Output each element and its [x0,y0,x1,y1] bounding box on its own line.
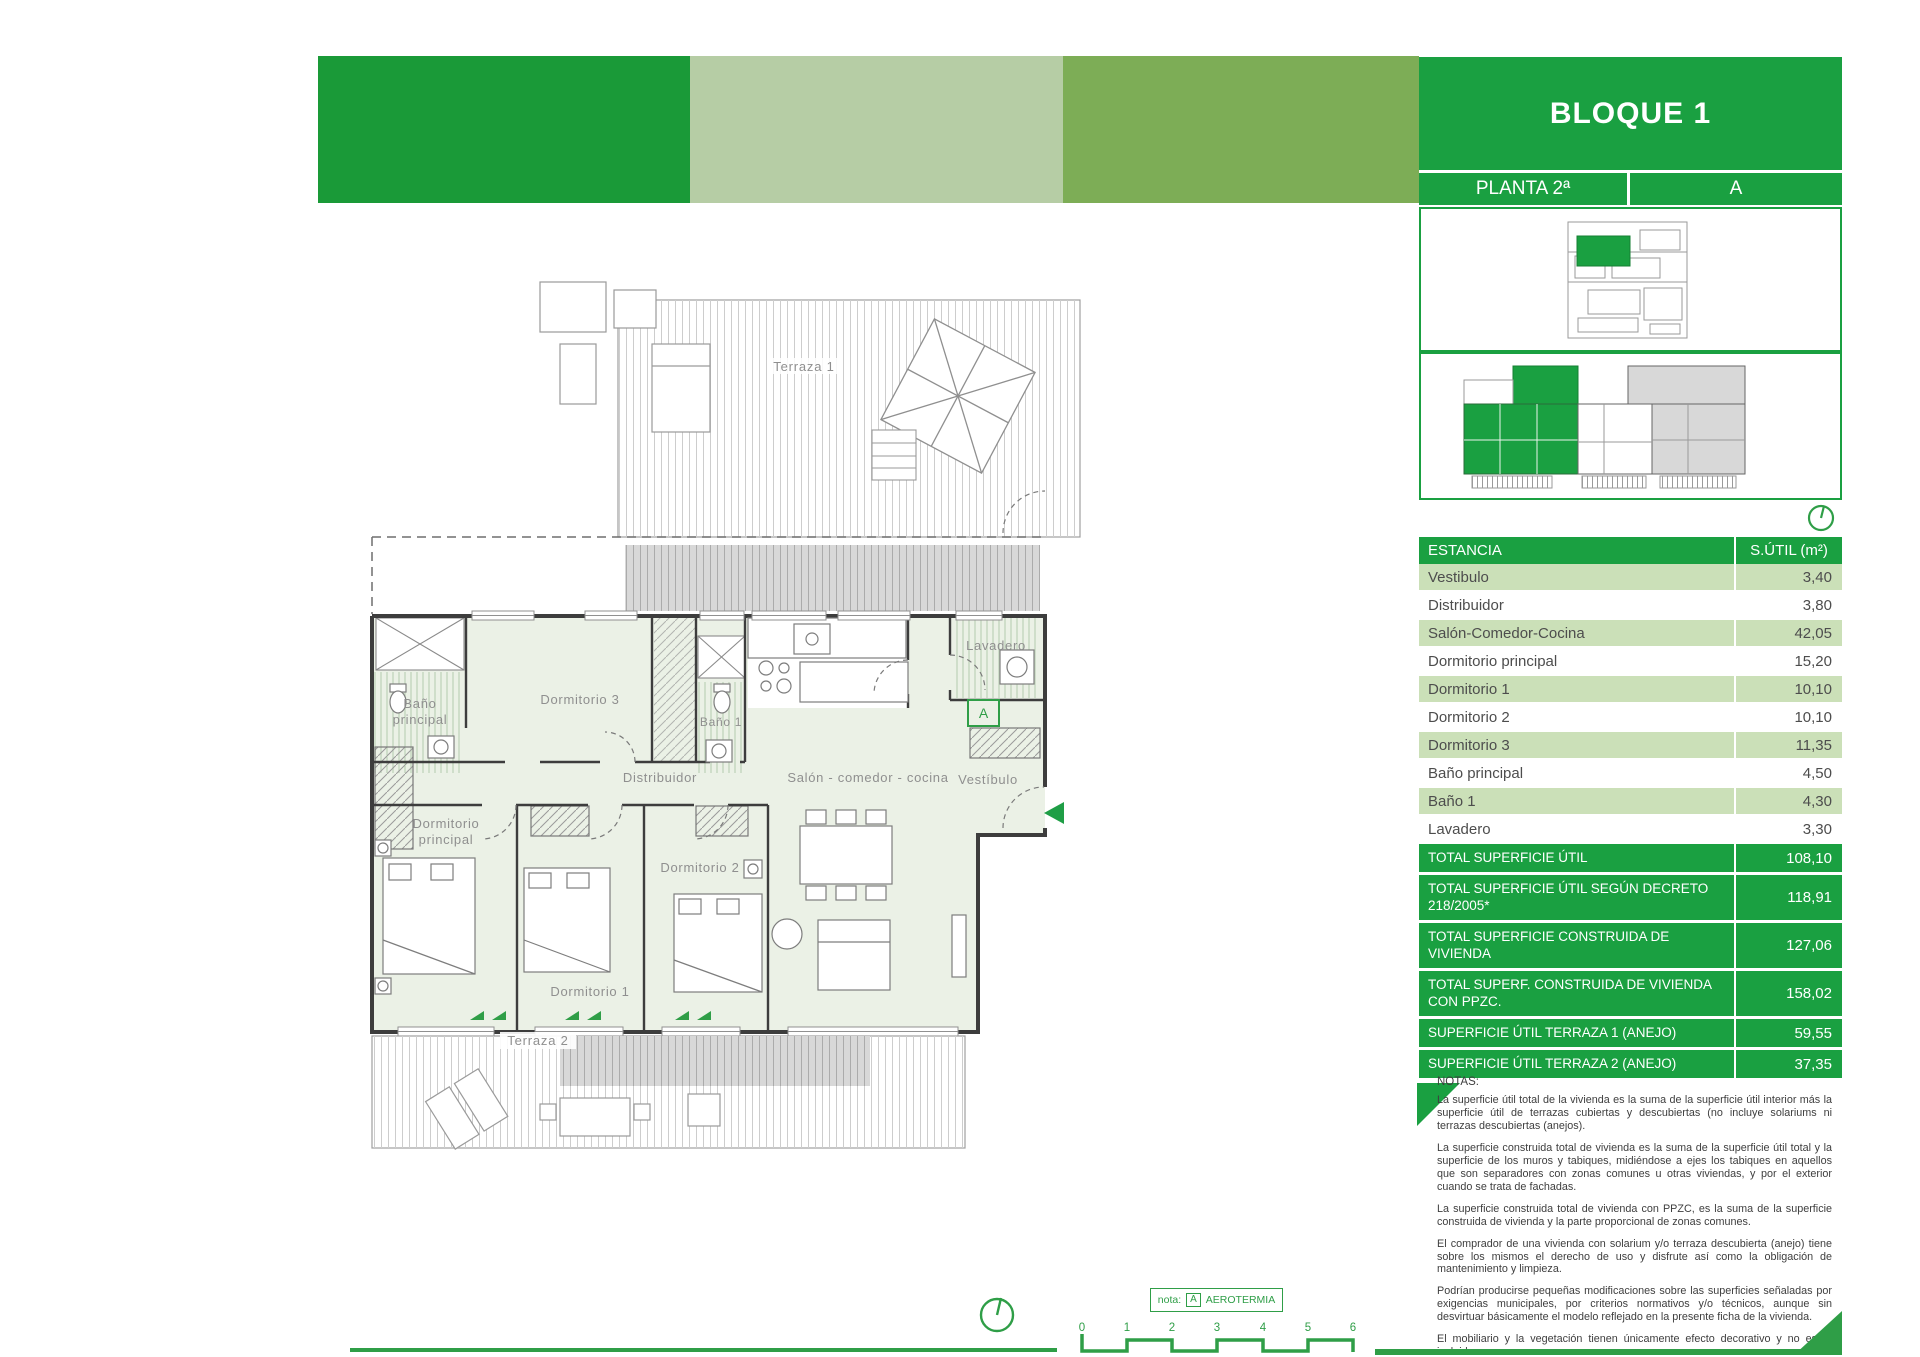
notes-paragraphs: La superficie útil total de la vivienda … [1437,1094,1832,1357]
surfaces-table: ESTANCIA S.ÚTIL (m²) Vestibulo3,40Distri… [1419,537,1842,1081]
note-paragraph: La superficie útil total de la vivienda … [1437,1094,1832,1133]
room-label: Distribuidor [1419,592,1734,618]
block-title: BLOQUE 1 [1419,57,1842,170]
scale-tick: 6 [1350,1322,1356,1334]
table-totals: TOTAL SUPERFICIE ÚTIL108,10TOTAL SUPERFI… [1419,844,1842,1081]
scale-bar: 0 1 2 3 4 5 6 [1070,1315,1430,1357]
scale-tick: 5 [1305,1322,1311,1334]
total-row: TOTAL SUPERFICIE CONSTRUIDA DE VIVIENDA1… [1419,923,1842,971]
bottom-rule-left [350,1348,1057,1352]
terrace-steps [872,430,916,480]
total-label: TOTAL SUPERFICIE CONSTRUIDA DE VIVIENDA [1419,923,1734,968]
site-keyplan-box [1419,207,1842,352]
table-row: Lavadero3,30 [1419,816,1842,844]
ficha-page: BLOQUE 1 PLANTA 2ª A [0,0,1920,1357]
total-value: 37,35 [1734,1050,1842,1078]
table-rows: Vestibulo3,40Distribuidor3,80Salón-Comed… [1419,564,1842,844]
room-label: Baño principal [1419,760,1734,786]
plan-label-dormitorio2: Dormitorio 2 [660,860,739,875]
plan-north-compass-icon [976,1294,1018,1336]
room-label: Baño 1 [1419,788,1734,814]
note-paragraph: La superficie construida total de vivien… [1437,1203,1832,1229]
note-paragraph: La superficie construida total de vivien… [1437,1142,1832,1194]
scale-tick: 1 [1124,1322,1130,1334]
room-area-value: 4,50 [1734,760,1842,786]
floor-keyplan [1421,354,1840,498]
total-value: 59,55 [1734,1019,1842,1047]
room-label: Dormitorio 1 [1419,676,1734,702]
room-label: Dormitorio principal [1419,648,1734,674]
plan-label-bano-principal: Baño [403,696,436,711]
scale-tick: 0 [1079,1322,1085,1334]
table-row: Dormitorio 210,10 [1419,704,1842,732]
plan-label-salon: Salón - comedor - cocina [787,770,948,785]
room-label: Dormitorio 2 [1419,704,1734,730]
plan-label-dormitorio-principal: Dormitorio [413,816,480,831]
nota-aerotermia-box: nota: A AEROTERMIA [1150,1288,1283,1312]
total-value: 127,06 [1734,923,1842,968]
room-area-value: 3,80 [1734,592,1842,618]
total-label: TOTAL SUPERF. CONSTRUIDA DE VIVIENDA CON… [1419,971,1734,1016]
table-row: Dormitorio principal15,20 [1419,648,1842,676]
floor-label: PLANTA 2ª [1419,173,1627,205]
col-sutil: S.ÚTIL (m²) [1734,537,1842,564]
site-keyplan [1421,209,1840,350]
room-label: Salón-Comedor-Cocina [1419,620,1734,646]
floor-plan: Terraza 1 [300,240,1120,1180]
band-dark-green [318,56,690,203]
plan-label-dormitorio3: Dormitorio 3 [540,692,619,707]
site-highlight-block [1577,236,1630,266]
aerotermia-badge: A [1186,1293,1201,1307]
plan-label-bano1: Baño 1 [700,715,742,729]
room-area-value: 4,30 [1734,788,1842,814]
room-area-value: 15,20 [1734,648,1842,674]
nota-label: AEROTERMIA [1206,1294,1275,1306]
entry-arrow [1044,802,1064,824]
keyplan-unit-highlight [1464,404,1578,474]
north-compass-icon [1804,500,1838,534]
nota-prefix: nota: [1158,1294,1181,1306]
table-row: Dormitorio 110,10 [1419,676,1842,704]
band-pale-green [690,56,1063,203]
table-header: ESTANCIA S.ÚTIL (m²) [1419,537,1842,564]
total-row: TOTAL SUPERF. CONSTRUIDA DE VIVIENDA CON… [1419,971,1842,1019]
svg-text:principal: principal [393,712,448,727]
room-label: Dormitorio 3 [1419,732,1734,758]
table-row: Distribuidor3,80 [1419,592,1842,620]
note-paragraph: El comprador de una vivienda con solariu… [1437,1238,1832,1277]
bottom-corner-wedge [1790,1308,1842,1355]
room-area-value: 42,05 [1734,620,1842,646]
notes-title: NOTAS: [1437,1076,1832,1088]
room-label: Lavadero [1419,816,1734,842]
terraza-1: Terraza 1 [540,282,1080,537]
total-row: TOTAL SUPERFICIE ÚTIL108,10 [1419,844,1842,875]
plan-label-lavadero: Lavadero [966,638,1026,653]
room-area-value: 3,30 [1734,816,1842,842]
unit-label: A [1630,173,1842,205]
bottom-rule-right [1375,1349,1842,1355]
table-row: Salón-Comedor-Cocina42,05 [1419,620,1842,648]
scale-tick: 4 [1260,1322,1267,1334]
plan-label-terraza2: Terraza 2 [507,1033,568,1048]
scale-tick: 2 [1169,1322,1175,1334]
notes-section: NOTAS: La superficie útil total de la vi… [1437,1076,1832,1357]
total-label: SUPERFICIE ÚTIL TERRAZA 1 (ANEJO) [1419,1019,1734,1047]
plan-label-terraza1: Terraza 1 [773,359,834,374]
table-row: Baño 14,30 [1419,788,1842,816]
table-row: Baño principal4,50 [1419,760,1842,788]
plan-label-vestibulo: Vestíbulo [958,772,1018,787]
table-row: Dormitorio 311,35 [1419,732,1842,760]
keyplan-unit-terrace-highlight [1513,366,1578,404]
room-area-value: 3,40 [1734,564,1842,590]
total-value: 158,02 [1734,971,1842,1016]
room-area-value: 10,10 [1734,704,1842,730]
band-olive-green [1063,56,1419,203]
note-paragraph: Podrían producirse pequeñas modificacion… [1437,1285,1832,1324]
plan-label-distribuidor: Distribuidor [623,770,697,785]
total-label: SUPERFICIE ÚTIL TERRAZA 2 (ANEJO) [1419,1050,1734,1078]
total-value: 118,91 [1734,875,1842,920]
col-estancia: ESTANCIA [1419,537,1734,564]
room-area-value: 10,10 [1734,676,1842,702]
total-row: TOTAL SUPERFICIE ÚTIL SEGÚN DECRETO 218/… [1419,875,1842,923]
scale-tick: 3 [1214,1322,1220,1334]
floor-unit-row: PLANTA 2ª A [1419,173,1842,205]
plan-label-dormitorio1: Dormitorio 1 [550,984,629,999]
total-row: SUPERFICIE ÚTIL TERRAZA 1 (ANEJO)59,55 [1419,1019,1842,1050]
terraza-2: Terraza 2 [372,1032,965,1149]
room-label: Vestibulo [1419,564,1734,590]
total-label: TOTAL SUPERFICIE ÚTIL SEGÚN DECRETO 218/… [1419,875,1734,920]
room-area-value: 11,35 [1734,732,1842,758]
svg-text:principal: principal [419,832,474,847]
total-value: 108,10 [1734,844,1842,872]
total-label: TOTAL SUPERFICIE ÚTIL [1419,844,1734,872]
aerotermia-plan-badge-letter: A [979,705,989,721]
floor-keyplan-box [1419,352,1842,500]
table-row: Vestibulo3,40 [1419,564,1842,592]
